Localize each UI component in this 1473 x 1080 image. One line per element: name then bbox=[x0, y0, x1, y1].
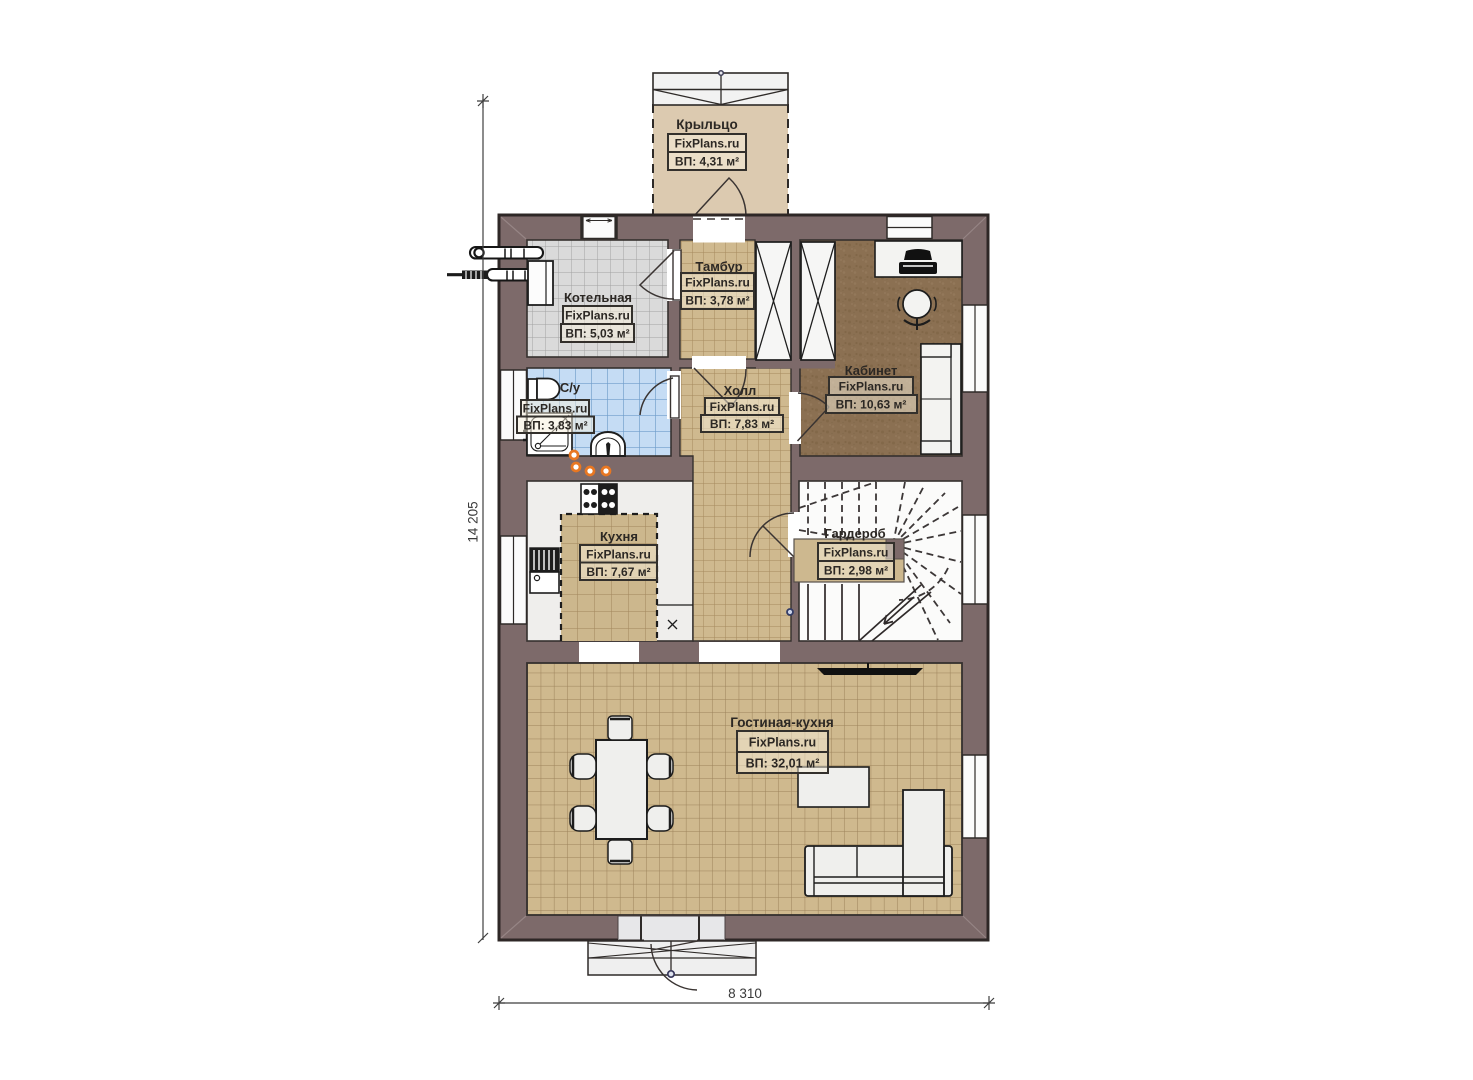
svg-text:ВП: 3,78 м²: ВП: 3,78 м² bbox=[685, 294, 749, 308]
svg-text:FixPlans.ru: FixPlans.ru bbox=[685, 276, 750, 290]
svg-text:ВП: 7,67 м²: ВП: 7,67 м² bbox=[586, 565, 650, 579]
svg-text:ВП: 5,03 м²: ВП: 5,03 м² bbox=[565, 327, 629, 341]
svg-text:Крыльцо: Крыльцо bbox=[676, 117, 737, 132]
svg-text:8 310: 8 310 bbox=[728, 986, 762, 1001]
svg-text:ВП: 32,01 м²: ВП: 32,01 м² bbox=[746, 757, 820, 771]
svg-text:14 205: 14 205 bbox=[466, 501, 481, 542]
svg-text:ВП: 4,31 м²: ВП: 4,31 м² bbox=[675, 155, 739, 169]
svg-text:С/у: С/у bbox=[560, 380, 581, 395]
svg-text:FixPlans.ru: FixPlans.ru bbox=[710, 400, 775, 414]
svg-text:Холл: Холл bbox=[724, 383, 757, 398]
svg-text:FixPlans.ru: FixPlans.ru bbox=[749, 736, 816, 750]
svg-text:ВП: 10,63 м²: ВП: 10,63 м² bbox=[836, 398, 907, 412]
svg-text:FixPlans.ru: FixPlans.ru bbox=[839, 380, 904, 394]
svg-text:FixPlans.ru: FixPlans.ru bbox=[824, 546, 889, 560]
svg-text:Котельная: Котельная bbox=[564, 290, 632, 305]
svg-text:Гардероб: Гардероб bbox=[824, 526, 885, 541]
svg-text:FixPlans.ru: FixPlans.ru bbox=[565, 309, 630, 323]
svg-text:ВП: 3,83 м²: ВП: 3,83 м² bbox=[523, 419, 587, 433]
svg-text:FixPlans.ru: FixPlans.ru bbox=[523, 402, 588, 416]
svg-text:FixPlans.ru: FixPlans.ru bbox=[586, 548, 651, 562]
svg-text:Гостиная-кухня: Гостиная-кухня bbox=[730, 715, 833, 730]
svg-text:Кабинет: Кабинет bbox=[845, 363, 898, 378]
svg-text:ВП: 2,98 м²: ВП: 2,98 м² bbox=[824, 564, 888, 578]
svg-text:Тамбур: Тамбур bbox=[695, 259, 742, 274]
svg-text:FixPlans.ru: FixPlans.ru bbox=[675, 137, 740, 151]
svg-text:ВП: 7,83 м²: ВП: 7,83 м² bbox=[710, 417, 774, 431]
svg-text:Кухня: Кухня bbox=[600, 529, 638, 544]
